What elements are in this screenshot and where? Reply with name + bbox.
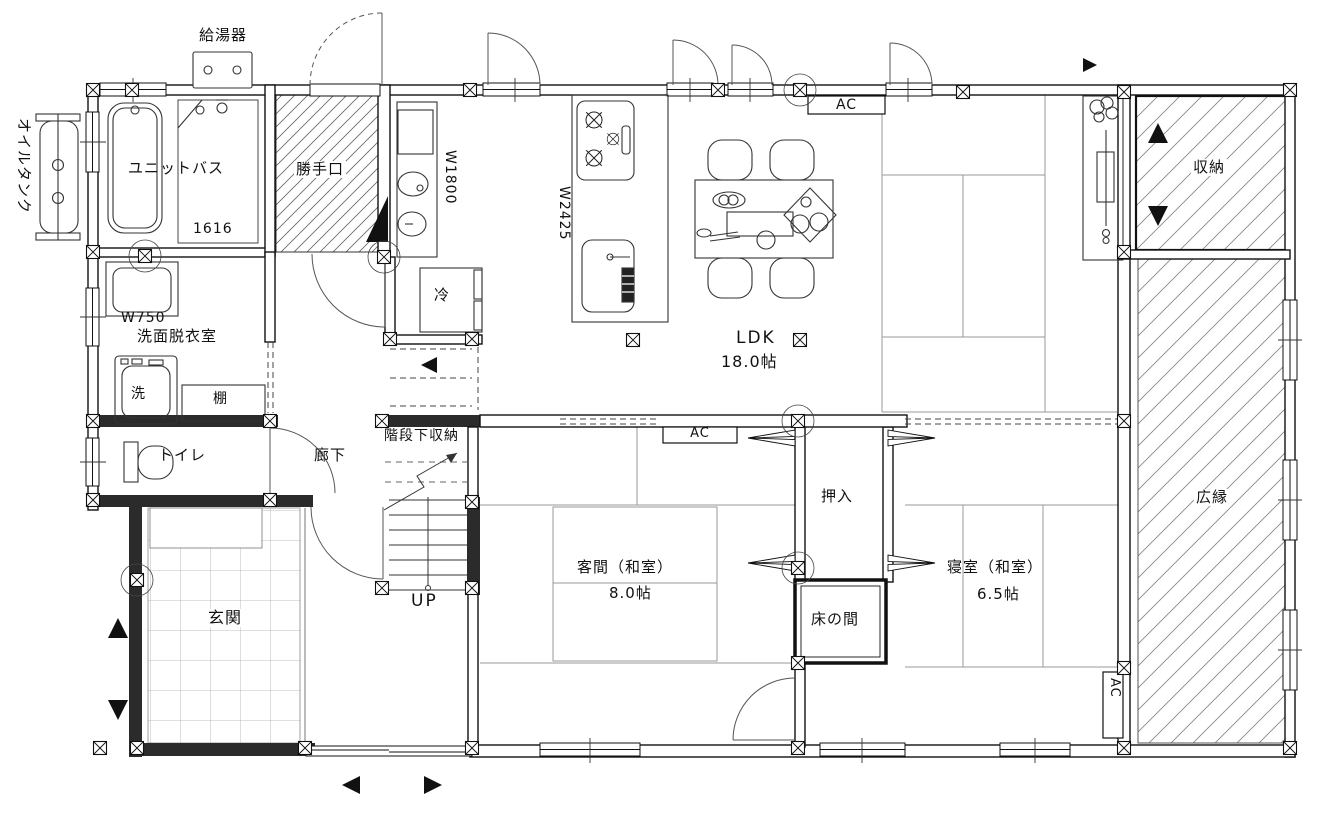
entrance-label: 玄関 [206,609,244,627]
entrance-step [150,508,262,548]
kitchen-counter [572,95,668,322]
bedroom-size-label: 6.5帖 [977,586,1020,603]
floor-plan-linework [0,0,1340,814]
washing-machine [115,356,177,424]
back-door-label: 勝手口 [294,161,346,178]
floor-plan: オイルタンク 給湯器 ユニットバス 1616 勝手口 W1800 W2425 冷… [0,0,1340,814]
ldk-label: LDK [736,329,776,349]
shelf-label: 棚 [213,391,228,407]
veranda-label: 広縁 [1194,489,1230,506]
dining-table [695,140,836,298]
closet-label: 押入 [821,488,853,505]
water-heater-label: 給湯器 [192,27,254,44]
corridor-label: 廊下 [314,447,346,464]
water-heater [193,52,252,88]
oil-tank-label: オイルタンク [15,118,32,214]
bedroom-label: 寝室（和室） [947,559,1043,576]
washstand-width-label: W750 [121,310,166,326]
vanity-counter [397,102,437,257]
tokonoma-label: 床の間 [811,611,859,628]
washstand [106,262,178,316]
kitchen-width-label: W2425 [556,186,572,240]
triangle-right-top [1083,58,1097,72]
triangle-down-entrance [108,700,128,720]
unit-bath-size-label: 1616 [193,221,233,237]
triangle-left-hall-slider [421,357,437,373]
toilet-label: トイレ [158,447,206,464]
triangle-up-entrance [108,618,128,638]
guest-room-label: 客間（和室） [577,559,673,576]
stairs [384,453,467,591]
under-stair-storage-label: 階段下収納 [382,428,461,444]
ac-label-right: AC [1106,678,1121,698]
triangle-left-entrance-slider [342,776,360,794]
cabinet-with-plant [1083,96,1123,260]
ac-label-middle: AC [663,427,737,442]
vanity-width-label: W1800 [442,150,458,204]
stove [577,101,634,180]
refrigerator [420,268,482,332]
up-label: UP [411,592,438,612]
ac-label-top: AC [808,97,885,113]
fridge-label: 冷 [434,287,450,304]
washer-label: 洗 [131,386,146,402]
ldk-size-label: 18.0帖 [721,353,778,371]
triangle-right-entrance-slider [424,776,442,794]
washroom-label: 洗面脱衣室 [137,328,217,345]
unit-bath-label: ユニットバス [128,160,224,177]
guest-room-size-label: 8.0帖 [609,585,652,602]
storage-label: 収納 [1191,159,1227,176]
oil-tank [36,114,80,240]
